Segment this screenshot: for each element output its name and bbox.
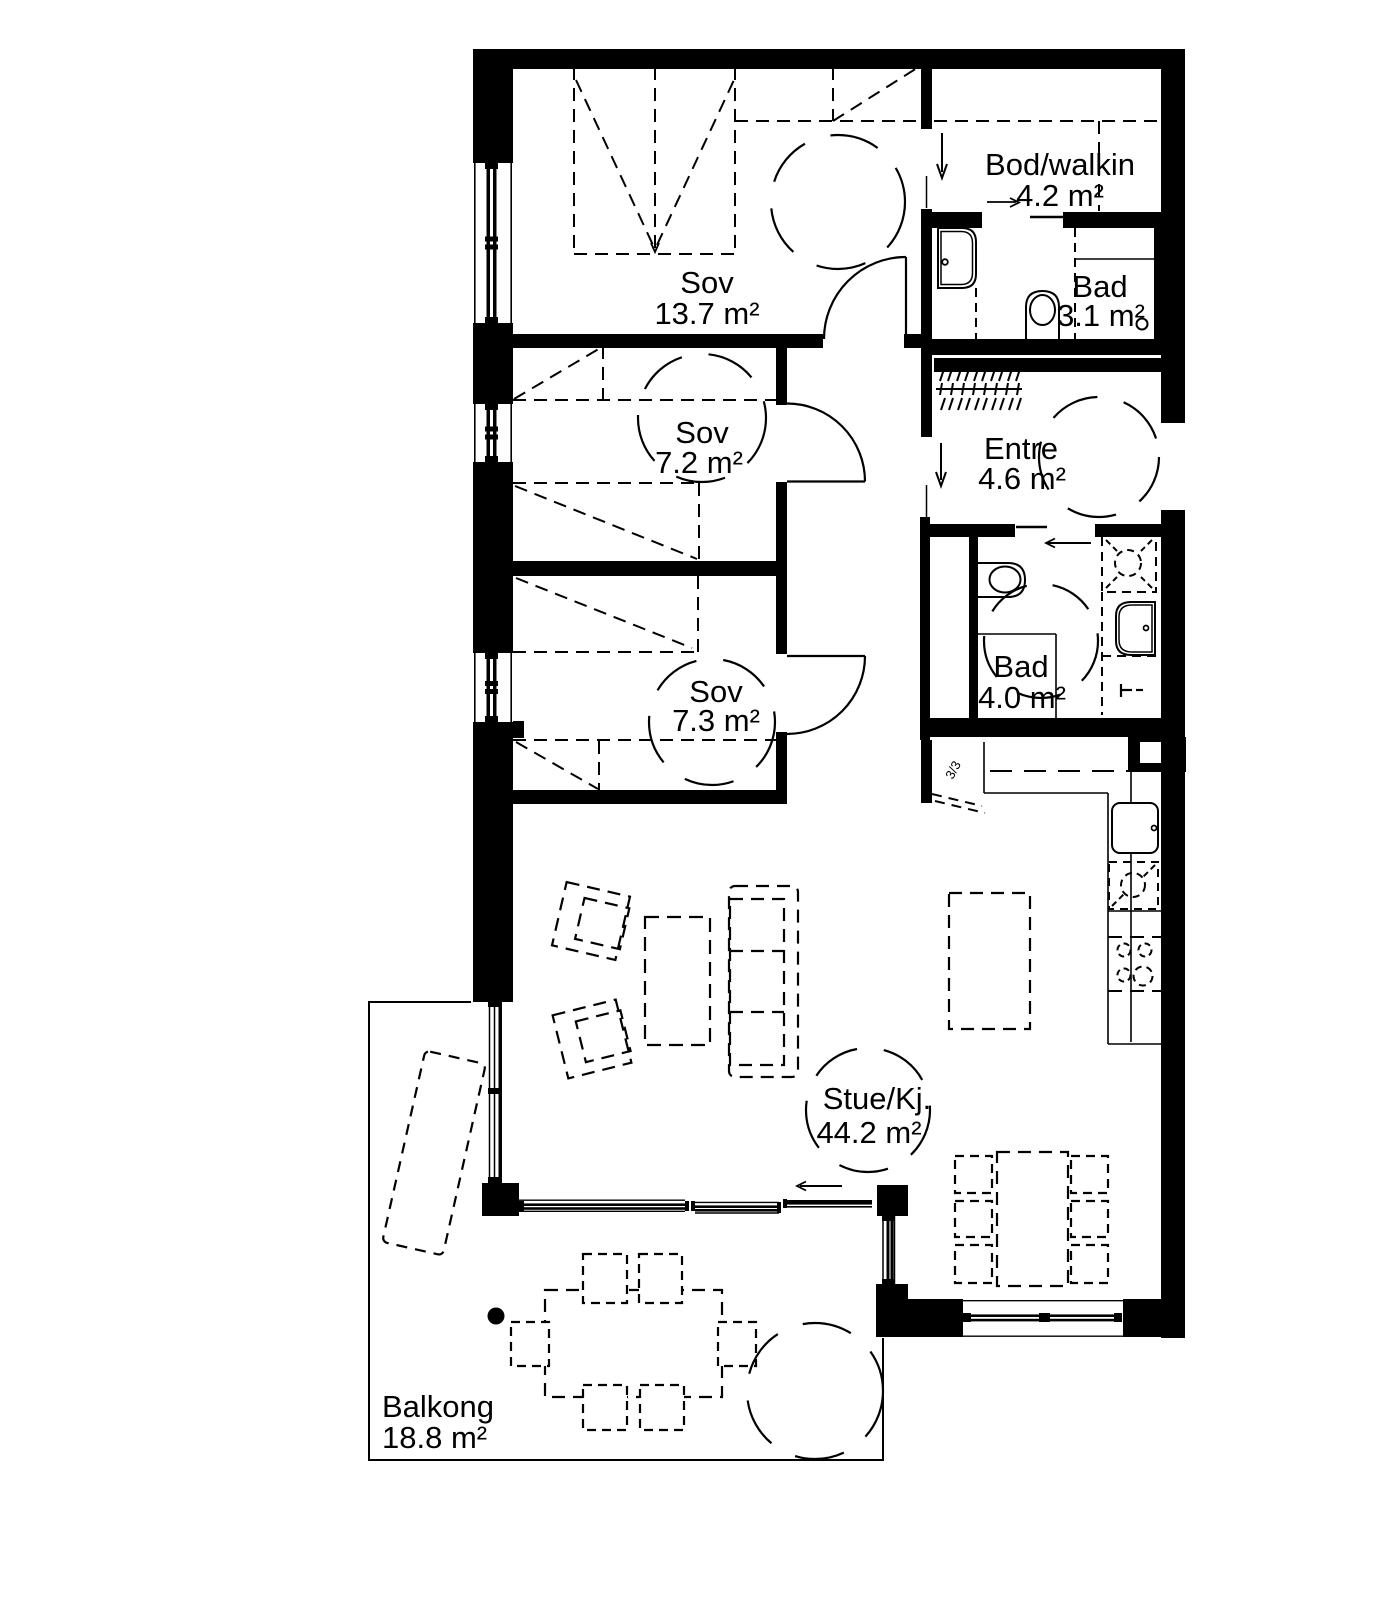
svg-text:Balkong: Balkong — [382, 1389, 494, 1424]
svg-text:3.1 m²: 3.1 m² — [1057, 298, 1145, 333]
svg-text:7.3 m²: 7.3 m² — [672, 703, 760, 738]
svg-text:Sov: Sov — [680, 265, 734, 300]
svg-text:44.2 m²: 44.2 m² — [816, 1115, 921, 1150]
svg-text:4.2 m²: 4.2 m² — [1016, 178, 1104, 213]
svg-text:7.2 m²: 7.2 m² — [655, 445, 743, 480]
svg-text:Stue/Kj.: Stue/Kj. — [823, 1081, 932, 1116]
svg-text:13.7 m²: 13.7 m² — [654, 296, 759, 331]
svg-text:18.8 m²: 18.8 m² — [382, 1420, 487, 1455]
svg-text:4.6 m²: 4.6 m² — [978, 461, 1066, 496]
svg-text:Bad: Bad — [993, 649, 1048, 684]
svg-text:Bod/walkin: Bod/walkin — [985, 147, 1135, 182]
svg-text:4.0 m²: 4.0 m² — [978, 680, 1066, 715]
